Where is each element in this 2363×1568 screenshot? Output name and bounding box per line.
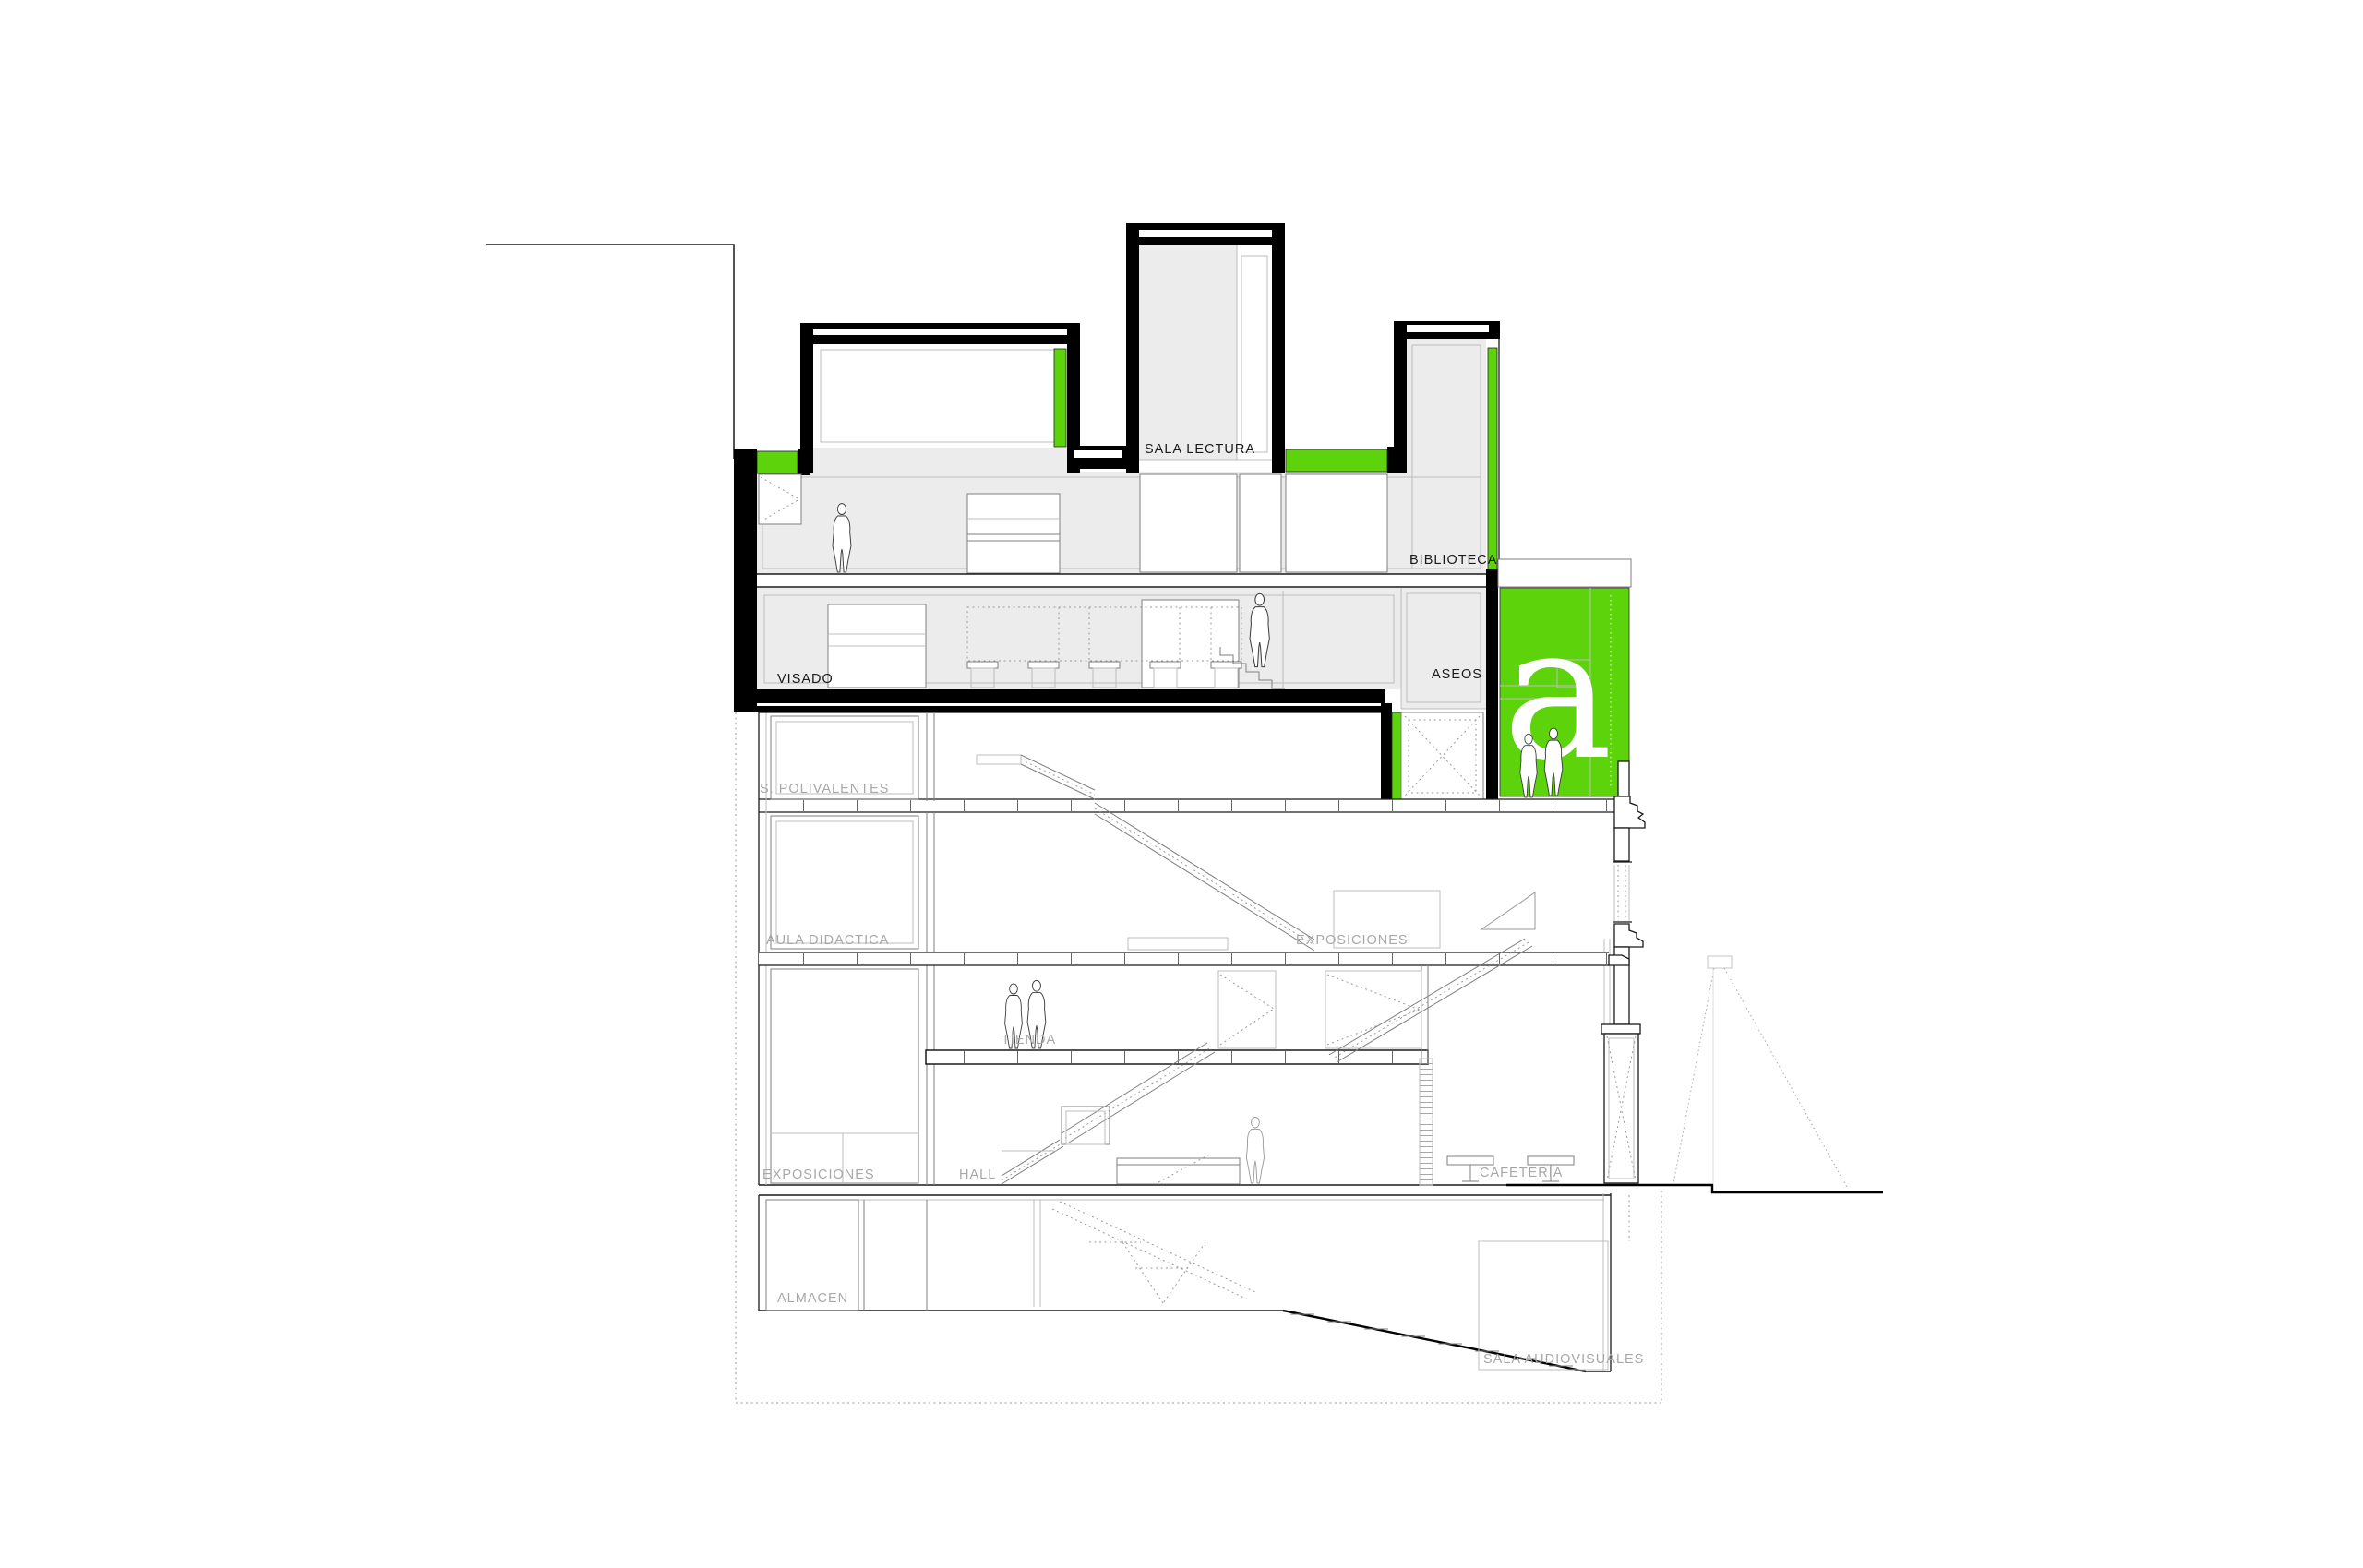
building-section-drawing: a [0, 0, 2363, 1568]
right-tower-glazing-green [1488, 348, 1497, 570]
label-biblioteca: BIBLIOTECA [1409, 553, 1497, 568]
skylight-glazing-green [1054, 349, 1066, 447]
architectural-section-page: a [0, 0, 2363, 1568]
reception-desk [1117, 1158, 1240, 1184]
label-tienda: TIENDA [1002, 1033, 1056, 1047]
clerestory-green-left [757, 451, 798, 473]
bookshelf [967, 494, 1060, 573]
door-panel [759, 474, 801, 524]
label-aseos: ASEOS [1432, 667, 1482, 682]
label-visado: VISADO [777, 672, 834, 687]
label-almacen: ALMACEN [777, 1291, 848, 1306]
pilaster [1604, 1034, 1638, 1183]
cabinet [828, 604, 926, 688]
heavy-floor-slab [734, 689, 1385, 712]
logo-facade-panel: a [1498, 559, 1631, 801]
left-main-wall [734, 449, 757, 712]
label-exposiciones-ground: EXPOSICIONES [762, 1167, 875, 1182]
clerestory-green-right [1286, 449, 1387, 472]
label-aula-didactica: AULA DIDACTICA [766, 933, 889, 948]
label-s-polivalentes: S. POLIVALENTES [760, 782, 889, 796]
label-sala-lectura: SALA LECTURA [1145, 442, 1255, 457]
parapet-band [1498, 559, 1631, 587]
label-hall: HALL [959, 1167, 996, 1182]
slab-band-1 [759, 799, 1629, 812]
ladder-strip [1420, 1059, 1433, 1185]
roof-connector-band [1068, 446, 1128, 469]
label-sala-audiovisuales: SALA AUDIOVISUALES [1483, 1352, 1644, 1367]
lower-glazing-green [1392, 712, 1401, 799]
label-exposiciones-upper: EXPOSICIONES [1296, 933, 1409, 948]
label-cafeteria: CAFETERIA [1480, 1166, 1563, 1180]
